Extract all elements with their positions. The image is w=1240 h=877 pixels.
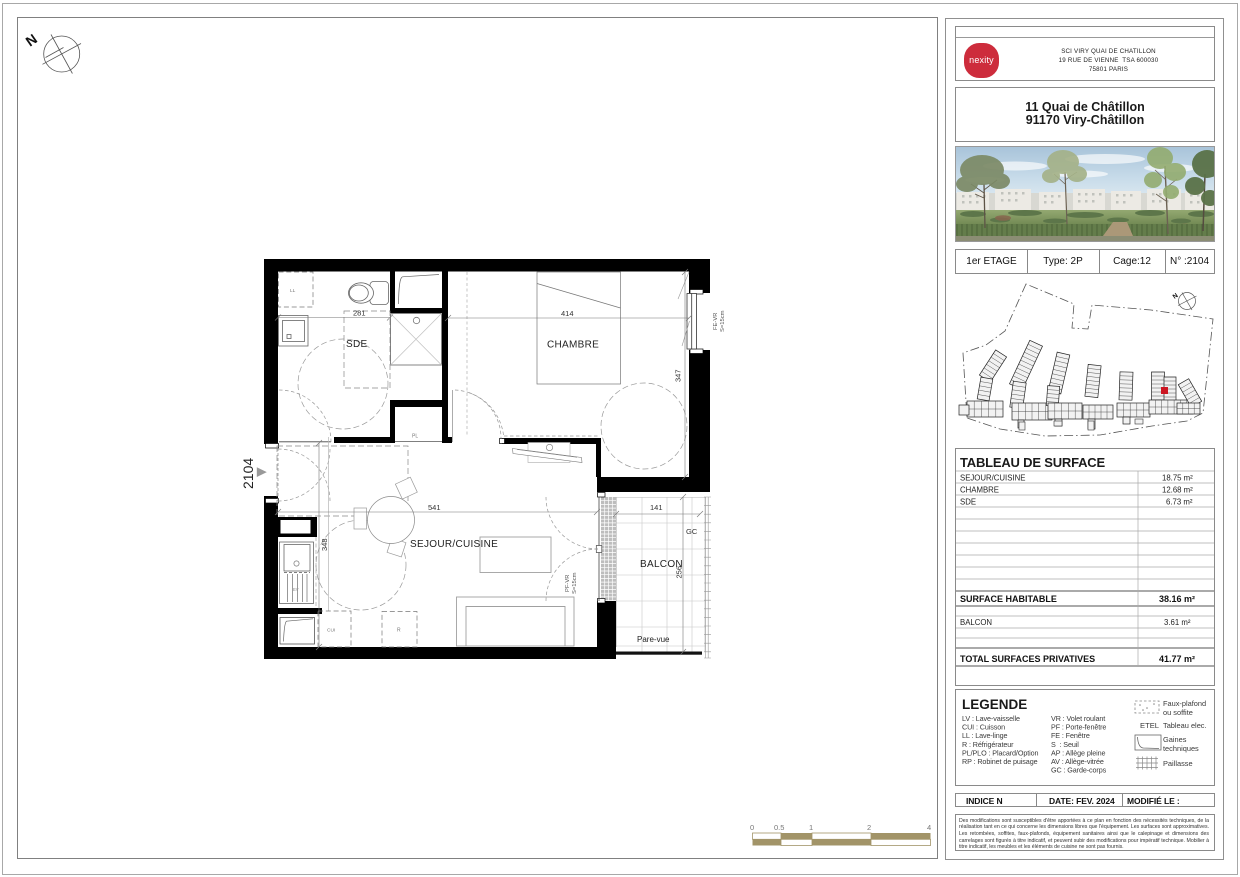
svg-text:348: 348 — [320, 538, 329, 551]
svg-text:4: 4 — [927, 823, 931, 832]
svg-text:ETEL: ETEL — [1140, 721, 1159, 730]
svg-text:SEJOUR/CUISINE: SEJOUR/CUISINE — [960, 474, 1025, 483]
svg-text:Tableau elec.: Tableau elec. — [1163, 721, 1207, 730]
svg-text:BALCON: BALCON — [960, 618, 992, 627]
svg-text:ou soffite: ou soffite — [1163, 708, 1193, 717]
svg-text:0.5: 0.5 — [774, 823, 784, 832]
svg-text:18.75 m²: 18.75 m² — [1162, 474, 1193, 483]
svg-text:CHAMBRE: CHAMBRE — [547, 340, 599, 351]
svg-text:S=15cm: S=15cm — [572, 572, 578, 594]
svg-text:Faux-plafond: Faux-plafond — [1163, 699, 1206, 708]
svg-text:S=15cm: S=15cm — [720, 310, 726, 332]
svg-text:EV: EV — [293, 587, 299, 592]
svg-text:GC: GC — [686, 527, 698, 536]
svg-text:41.77 m²: 41.77 m² — [1159, 654, 1195, 664]
svg-text:3.61 m²: 3.61 m² — [1164, 618, 1191, 627]
svg-text:R: R — [397, 628, 401, 634]
svg-text:PL: PL — [412, 434, 418, 440]
svg-text:RP : Robinet de puisage: RP : Robinet de puisage — [962, 757, 1038, 766]
svg-text:141: 141 — [650, 503, 663, 512]
svg-text:techniques: techniques — [1163, 744, 1199, 753]
svg-text:6.73 m²: 6.73 m² — [1166, 498, 1193, 507]
svg-text:TOTAL SURFACES PRIVATIVES: TOTAL SURFACES PRIVATIVES — [960, 654, 1095, 664]
svg-text:2: 2 — [867, 823, 871, 832]
svg-text:SURFACE HABITABLE: SURFACE HABITABLE — [960, 594, 1057, 604]
svg-text:414: 414 — [561, 309, 574, 318]
svg-text:BALCON: BALCON — [640, 559, 683, 570]
svg-text:SDE: SDE — [960, 498, 976, 507]
svg-text:541: 541 — [428, 503, 441, 512]
svg-text:N: N — [23, 31, 40, 50]
svg-text:347: 347 — [674, 369, 683, 382]
svg-text:2104: 2104 — [240, 458, 256, 489]
svg-text:0: 0 — [750, 823, 754, 832]
svg-text:CUI: CUI — [327, 628, 335, 634]
svg-text:CHAMBRE: CHAMBRE — [960, 486, 999, 495]
svg-text:GC : Garde-corps: GC : Garde-corps — [1051, 766, 1107, 775]
svg-text:Pare-vue: Pare-vue — [637, 635, 670, 644]
svg-text:281: 281 — [353, 309, 366, 318]
svg-text:TABLEAU DE SURFACE: TABLEAU DE SURFACE — [960, 455, 1105, 470]
svg-text:LL: LL — [290, 288, 296, 294]
svg-text:Paillasse: Paillasse — [1163, 759, 1193, 768]
svg-text:FE-VR: FE-VR — [713, 313, 719, 330]
svg-text:LEGENDE: LEGENDE — [962, 697, 1027, 712]
svg-text:SEJOUR/CUISINE: SEJOUR/CUISINE — [410, 539, 498, 550]
svg-text:12.68 m²: 12.68 m² — [1162, 486, 1193, 495]
svg-text:SDE: SDE — [346, 339, 367, 350]
svg-text:1: 1 — [809, 823, 813, 832]
svg-text:Gaines: Gaines — [1163, 735, 1187, 744]
svg-text:PF-VR: PF-VR — [565, 575, 571, 592]
svg-text:38.16 m²: 38.16 m² — [1159, 594, 1195, 604]
